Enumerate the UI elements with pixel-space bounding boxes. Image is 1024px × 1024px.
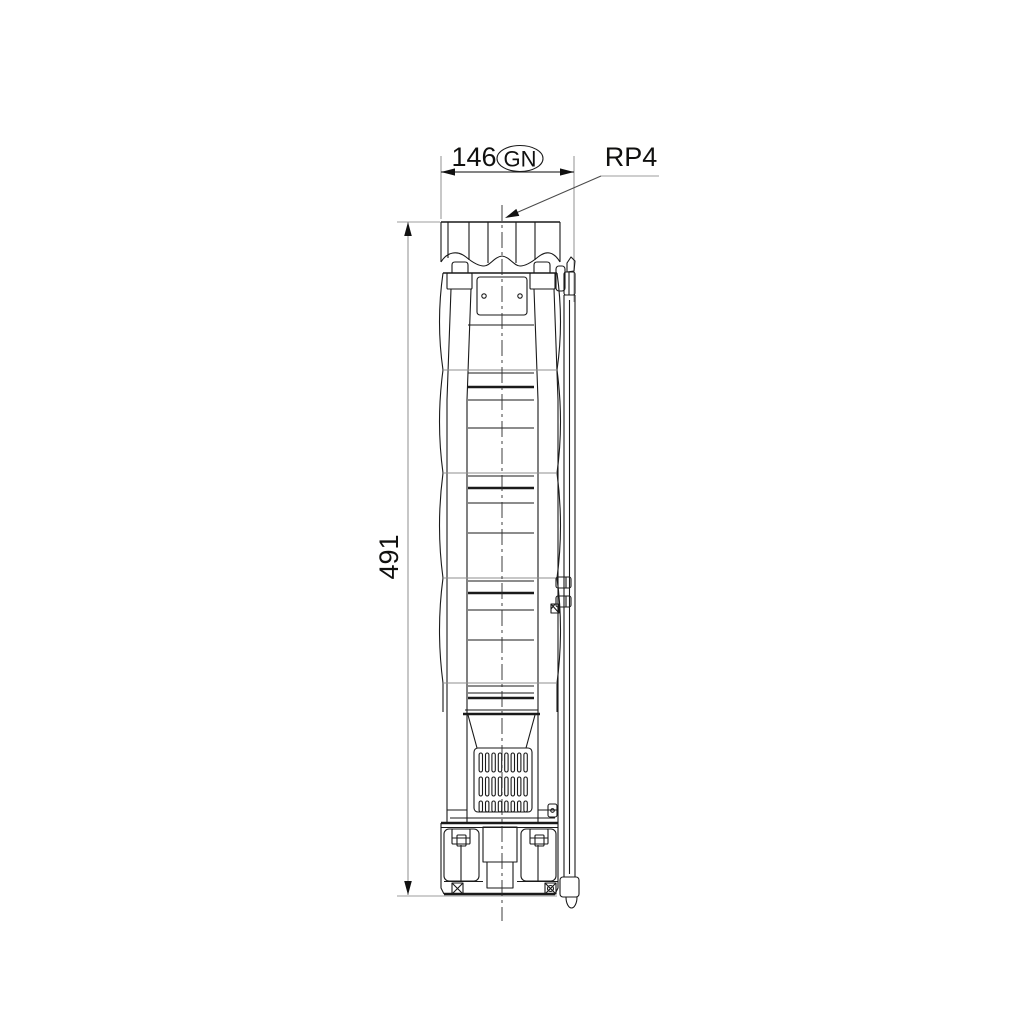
width-dimension-value: 146 — [451, 142, 496, 172]
casing-wavy-edge — [441, 253, 560, 266]
leader-line — [509, 176, 601, 216]
foot-bolt-right — [545, 883, 556, 894]
strainer-slots — [479, 753, 527, 812]
cable-guard-clips — [551, 577, 571, 613]
height-dimension-value: 491 — [374, 534, 404, 579]
arrowhead-top-icon — [404, 222, 412, 236]
port-code-label: GN — [504, 147, 537, 172]
height-dimension: 491 — [374, 222, 557, 896]
arrowhead-bottom-icon — [404, 881, 412, 895]
suction-strainer — [450, 748, 557, 818]
arrowhead-right-icon — [560, 168, 574, 175]
valve-casing — [441, 222, 560, 266]
cable-guard-bottom-hook — [560, 877, 579, 908]
foot-bolt-left — [452, 883, 463, 894]
motor-center-housing — [483, 827, 517, 862]
connection-label: RP4 — [605, 142, 658, 172]
technical-drawing-page: 146 GN RP4 491 — [0, 0, 1024, 1024]
pump-body — [440, 205, 580, 921]
top-clamps — [447, 262, 555, 289]
suction-interconnector — [463, 710, 540, 748]
motor-section — [441, 823, 558, 894]
stage-lines — [443, 325, 557, 698]
side-straps — [447, 289, 558, 823]
pump-outline-drawing: 146 GN RP4 491 — [0, 0, 1024, 1024]
chamber-outer-edges — [440, 273, 561, 712]
leader-arrowhead-icon — [505, 209, 519, 218]
